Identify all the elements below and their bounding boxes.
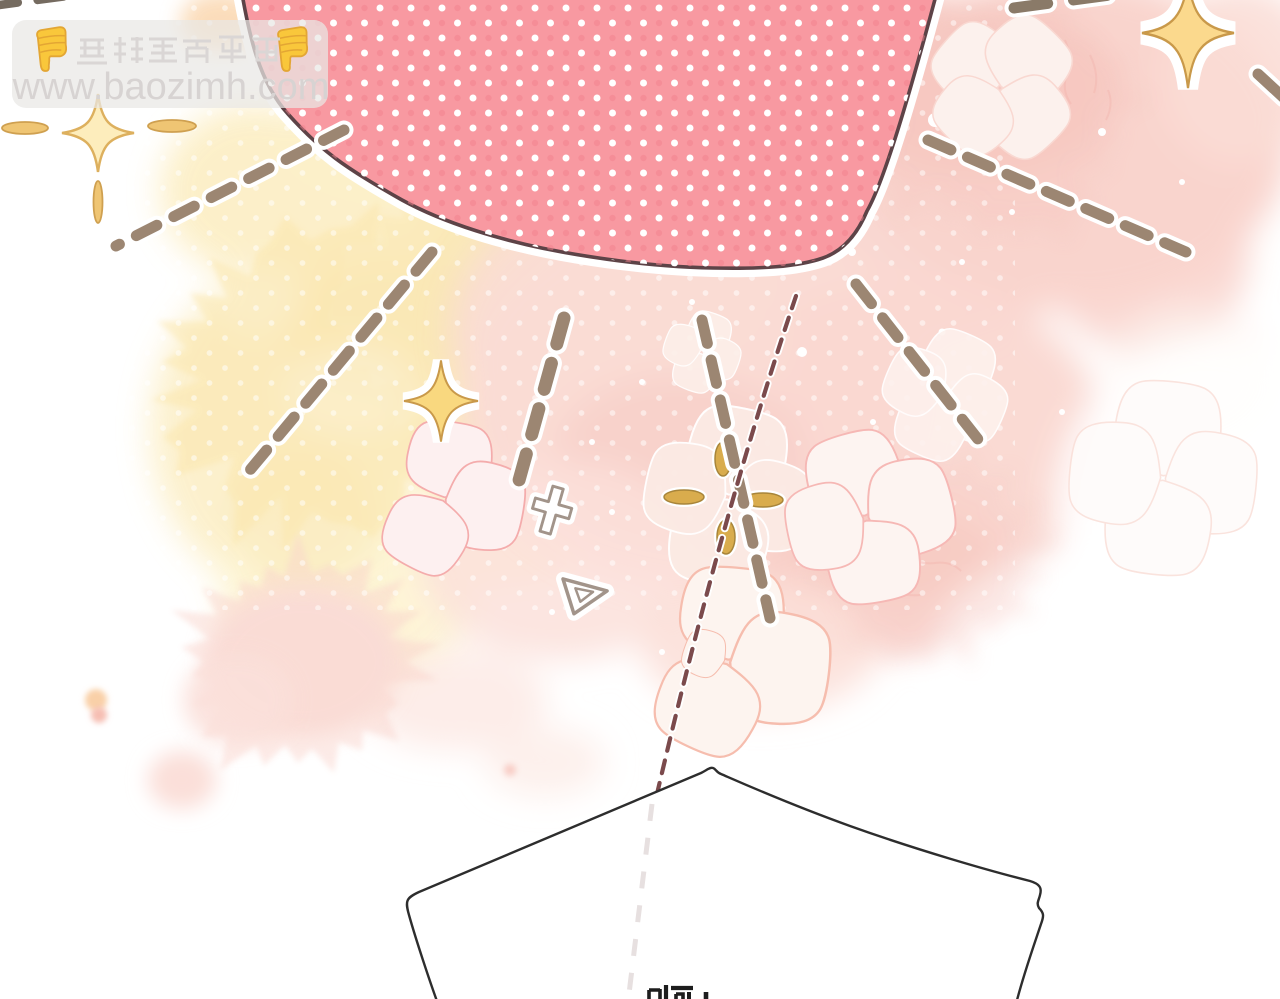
svg-text:www.baozimh.com: www.baozimh.com <box>12 66 330 108</box>
